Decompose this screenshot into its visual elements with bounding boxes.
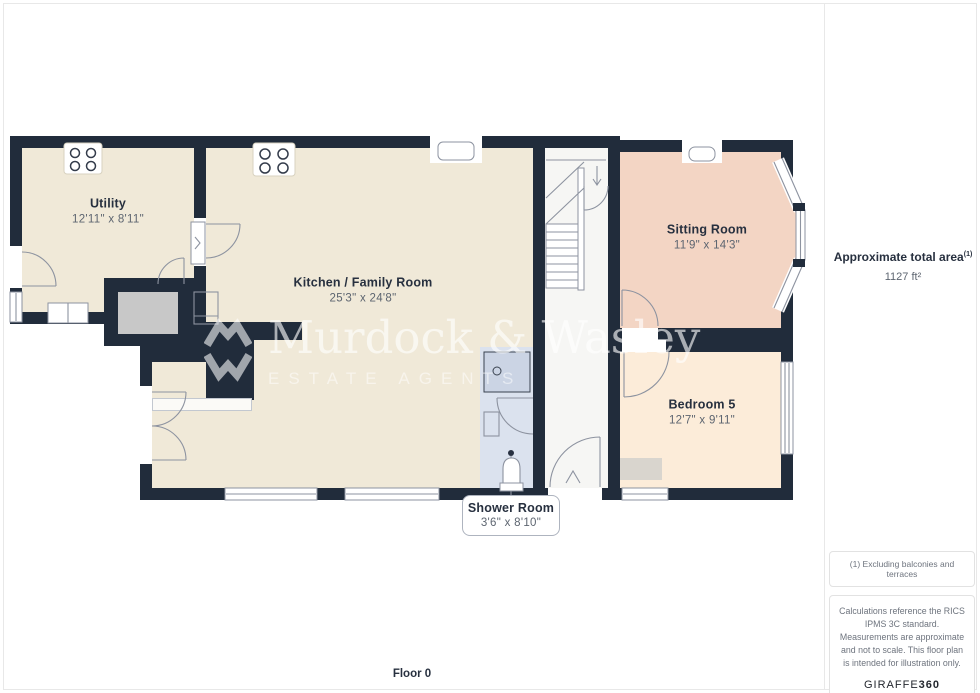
area-footnote-marker: (1) [964, 251, 973, 258]
room-shower [480, 347, 533, 488]
hallway-stairs-area [545, 148, 608, 488]
floor-label: Floor 0 [0, 668, 824, 680]
disclaimer-text: Calculations reference the RICS IPMS 3C … [839, 605, 965, 670]
info-sidebar: Approximate total area(1) 1127 ft² (1) E… [824, 4, 980, 689]
kitchen-counter [152, 398, 252, 411]
label-bedroom5: Bedroom 5 12'7" x 9'11" [668, 398, 735, 427]
bedroom-hearth-mat [620, 458, 662, 480]
label-kitchen: Kitchen / Family Room 25'3" x 24'8" [294, 276, 433, 305]
label-utility: Utility 12'11" x 8'11" [72, 197, 144, 226]
wall-stub-vertical [206, 322, 254, 400]
chimney-core [118, 292, 178, 334]
floorplan-page: Murdock & Wasley ESTATE AGENTS Utility 1… [0, 0, 980, 693]
disclaimer-box: Calculations reference the RICS IPMS 3C … [829, 595, 975, 693]
total-area-value: 1127 ft² [825, 271, 980, 283]
label-sitting: Sitting Room 11'9" x 14'3" [667, 223, 747, 252]
total-area-block: Approximate total area(1) 1127 ft² [825, 250, 980, 283]
total-area-label: Approximate total area(1) [825, 250, 980, 264]
label-shower-callout: Shower Room 3'6" x 8'10" [462, 495, 560, 536]
footnote-box: (1) Excluding balconies and terraces [829, 551, 975, 587]
giraffe360-brand: GIRAFFE360 [839, 677, 965, 693]
